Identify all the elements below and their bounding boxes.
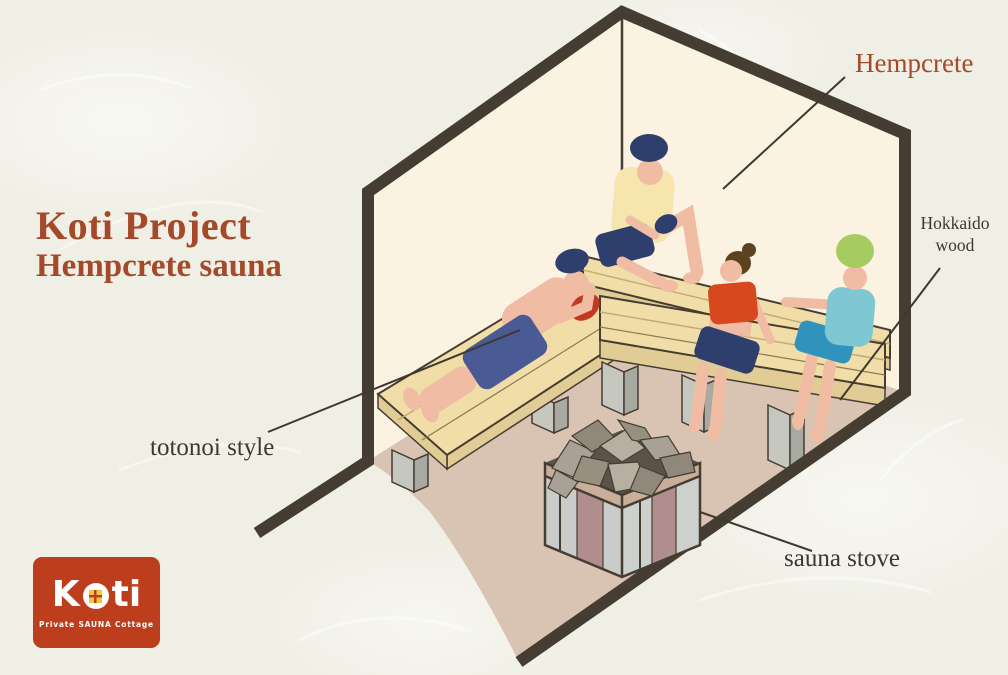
poster-canvas: Koti Project Hempcrete sauna Hempcrete H… bbox=[0, 0, 1008, 675]
person-teal-head bbox=[843, 266, 867, 290]
hair-bun bbox=[742, 243, 756, 257]
stove-accent-panel-left bbox=[577, 489, 603, 569]
koti-logo: K ti Private SAUNA Cottage bbox=[33, 557, 160, 648]
stove-accent-panel-right bbox=[652, 486, 676, 565]
logo-brand: K ti bbox=[52, 577, 141, 613]
title-block: Koti Project Hempcrete sauna bbox=[36, 204, 282, 286]
logo-window-icon bbox=[83, 583, 109, 609]
logo-tagline: Private SAUNA Cottage bbox=[39, 620, 154, 629]
sauna-stove-label: sauna stove bbox=[784, 545, 900, 573]
logo-letters-ti: ti bbox=[112, 577, 142, 613]
navy-beanie-2 bbox=[630, 134, 668, 162]
person-red-top bbox=[707, 281, 758, 325]
person-yellow-head bbox=[637, 159, 663, 185]
hokkaido-wood-label: Hokkaido wood bbox=[905, 213, 1005, 257]
person-red-leg bbox=[697, 368, 703, 416]
person-red-head bbox=[720, 260, 742, 282]
page-title: Koti Project bbox=[36, 204, 282, 248]
totonoi-style-label: totonoi style bbox=[150, 434, 274, 462]
page-subtitle: Hempcrete sauna bbox=[36, 248, 282, 286]
green-beanie bbox=[836, 234, 874, 268]
hempcrete-label: Hempcrete bbox=[855, 48, 973, 79]
logo-letter-k: K bbox=[52, 577, 80, 613]
person-teal-top bbox=[824, 286, 877, 348]
person-lying-head bbox=[563, 271, 589, 297]
